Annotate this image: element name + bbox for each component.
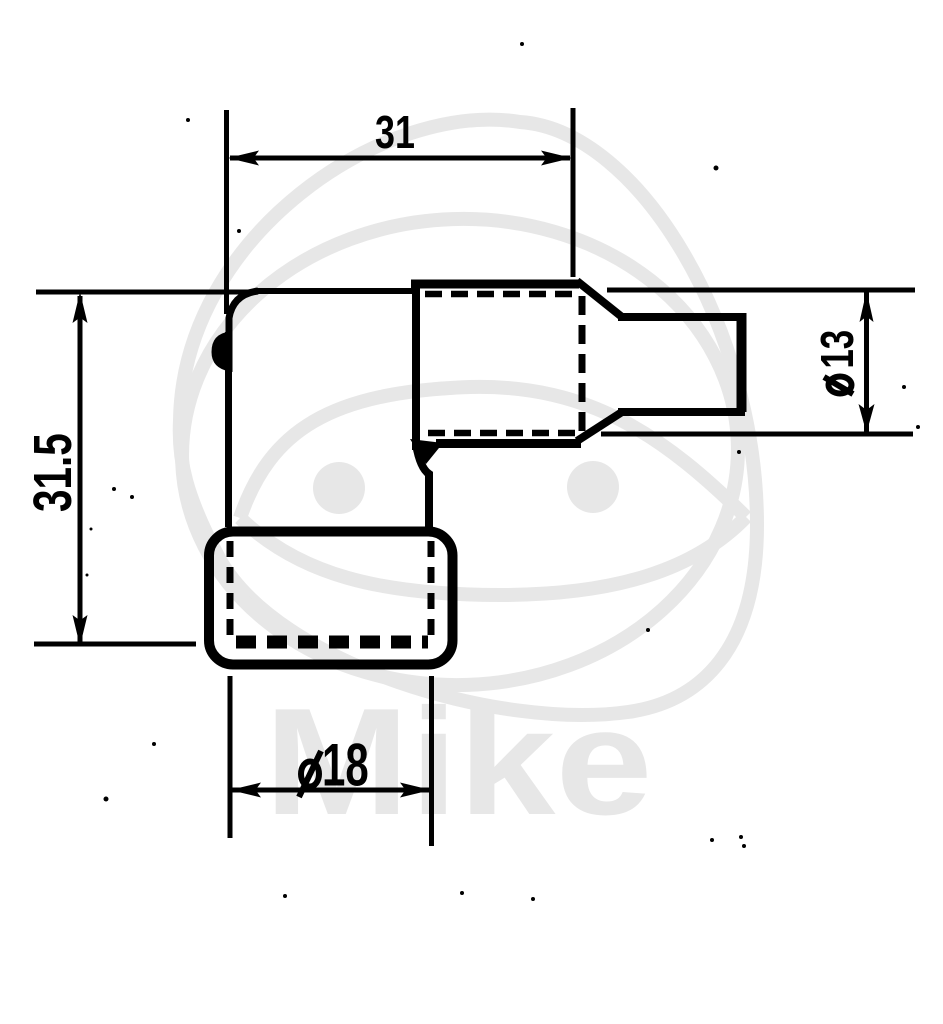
svg-text:31: 31	[375, 107, 415, 158]
svg-text:18: 18	[322, 731, 369, 798]
svg-text:13: 13	[811, 330, 863, 369]
svg-text:31.5: 31.5	[23, 433, 83, 512]
